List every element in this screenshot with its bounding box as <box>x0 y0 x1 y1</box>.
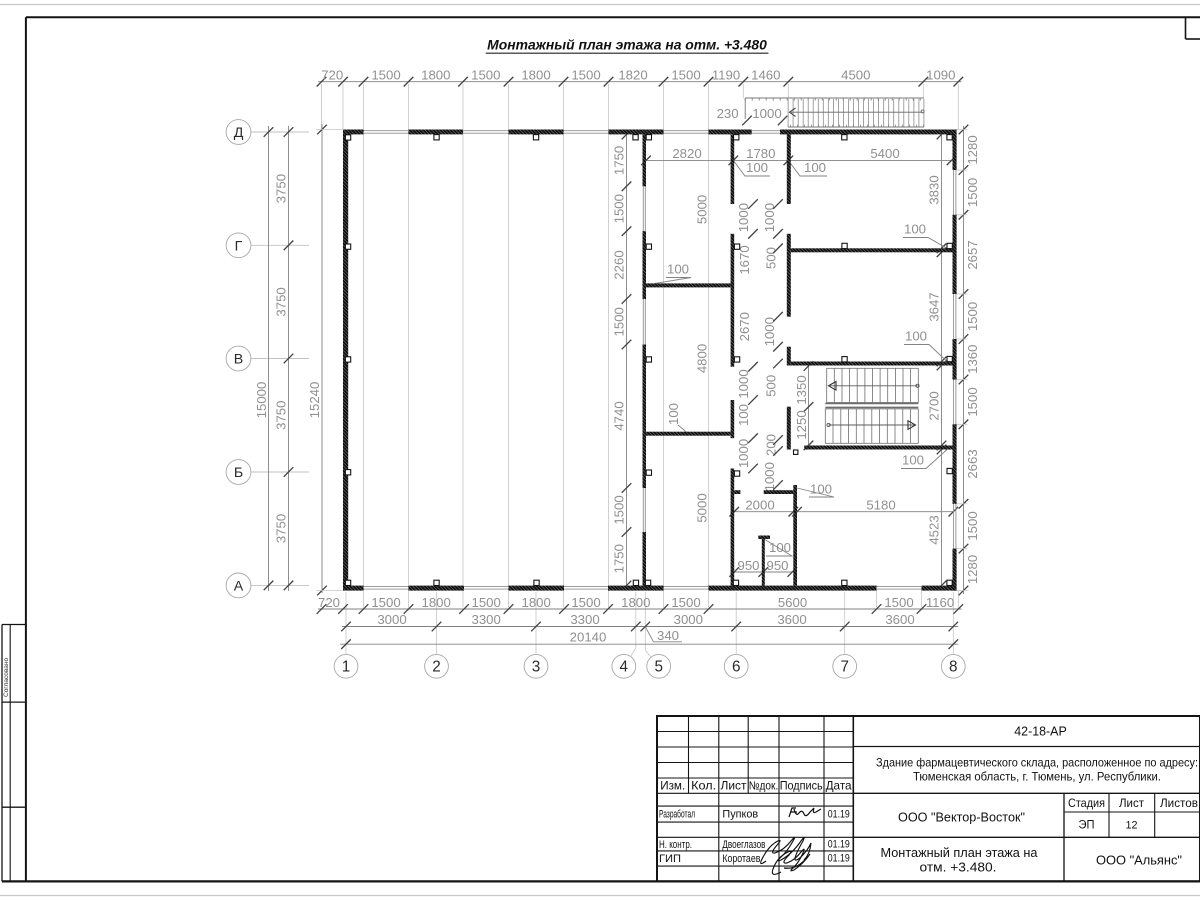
svg-text:А: А <box>234 579 244 595</box>
svg-text:8: 8 <box>949 659 958 676</box>
svg-text:1500: 1500 <box>611 194 626 223</box>
svg-text:3647: 3647 <box>927 292 942 321</box>
svg-text:15240: 15240 <box>307 382 322 419</box>
svg-text:ООО "Альянс": ООО "Альянс" <box>1096 853 1182 868</box>
svg-text:Тюменская область, г. Тюмень,: Тюменская область, г. Тюмень, ул. Респуб… <box>913 770 1161 784</box>
svg-text:1280: 1280 <box>965 555 980 584</box>
svg-text:1250: 1250 <box>794 410 809 439</box>
svg-text:1750: 1750 <box>611 146 626 175</box>
svg-text:1000: 1000 <box>762 317 777 346</box>
svg-text:7: 7 <box>840 659 849 676</box>
svg-text:100: 100 <box>746 160 768 175</box>
svg-text:3600: 3600 <box>777 612 806 627</box>
svg-text:1000: 1000 <box>752 106 781 121</box>
svg-text:12: 12 <box>1126 819 1138 831</box>
svg-text:340: 340 <box>657 628 679 643</box>
svg-text:1500: 1500 <box>472 595 501 610</box>
svg-text:1190: 1190 <box>712 67 740 82</box>
svg-text:950: 950 <box>766 558 788 573</box>
svg-text:15000: 15000 <box>254 382 269 419</box>
svg-text:5000: 5000 <box>695 493 710 522</box>
svg-text:5180: 5180 <box>866 498 895 513</box>
svg-text:1160: 1160 <box>926 595 954 610</box>
svg-text:1000: 1000 <box>736 369 751 398</box>
svg-text:5400: 5400 <box>870 146 899 161</box>
svg-text:1500: 1500 <box>965 178 980 207</box>
svg-text:1000: 1000 <box>736 203 751 232</box>
svg-text:4500: 4500 <box>841 67 870 82</box>
svg-text:2663: 2663 <box>965 449 980 478</box>
svg-text:1500: 1500 <box>571 67 600 82</box>
svg-text:1500: 1500 <box>965 387 980 416</box>
svg-text:Разработал: Разработал <box>659 809 695 821</box>
svg-text:100: 100 <box>902 453 924 468</box>
svg-text:2820: 2820 <box>672 146 701 161</box>
svg-text:100: 100 <box>905 329 927 344</box>
svg-text:1: 1 <box>342 659 351 676</box>
svg-text:3750: 3750 <box>273 514 288 543</box>
svg-text:230: 230 <box>717 106 739 121</box>
svg-text:720: 720 <box>318 595 340 610</box>
svg-text:3000: 3000 <box>377 612 406 627</box>
svg-text:5600: 5600 <box>778 595 807 610</box>
svg-text:2657: 2657 <box>965 240 980 269</box>
svg-text:Подпись: Подпись <box>780 779 823 793</box>
svg-text:Согласовано: Согласовано <box>3 658 10 697</box>
svg-text:1500: 1500 <box>611 307 626 336</box>
svg-text:1000: 1000 <box>762 462 777 491</box>
svg-text:Д: Д <box>234 125 244 141</box>
svg-text:100: 100 <box>666 403 681 425</box>
svg-text:Стадия: Стадия <box>1068 797 1105 810</box>
svg-text:100: 100 <box>804 160 826 175</box>
svg-text:5: 5 <box>654 659 663 676</box>
svg-text:1350: 1350 <box>794 375 809 404</box>
svg-text:1500: 1500 <box>371 67 400 82</box>
svg-text:2700: 2700 <box>927 391 942 420</box>
svg-text:Лист: Лист <box>1119 797 1145 810</box>
svg-text:4: 4 <box>620 659 629 676</box>
svg-text:ООО "Вектор-Восток": ООО "Вектор-Восток" <box>898 810 1025 825</box>
svg-text:1090: 1090 <box>926 67 955 82</box>
svg-text:отм. +3.480.: отм. +3.480. <box>920 859 997 874</box>
svg-text:1780: 1780 <box>746 146 775 161</box>
svg-text:01.19: 01.19 <box>828 808 850 820</box>
svg-text:1460: 1460 <box>751 67 780 82</box>
svg-text:100: 100 <box>736 404 751 426</box>
svg-text:1500: 1500 <box>965 511 980 540</box>
svg-text:2260: 2260 <box>611 250 626 279</box>
svg-text:1500: 1500 <box>671 67 700 82</box>
svg-text:Коротаев: Коротаев <box>722 853 760 865</box>
svg-text:100: 100 <box>904 222 926 237</box>
svg-text:4740: 4740 <box>611 401 626 430</box>
svg-text:Дата: Дата <box>826 779 852 793</box>
svg-text:2000: 2000 <box>745 498 774 513</box>
svg-text:Б: Б <box>234 465 243 481</box>
svg-text:1500: 1500 <box>884 595 913 610</box>
svg-text:Лист: Лист <box>721 779 748 793</box>
svg-text:01.19: 01.19 <box>828 853 850 865</box>
svg-text:1750: 1750 <box>611 544 626 573</box>
svg-text:1500: 1500 <box>371 595 400 610</box>
svg-text:1800: 1800 <box>521 67 550 82</box>
svg-text:2670: 2670 <box>737 312 752 341</box>
svg-text:1500: 1500 <box>671 595 700 610</box>
svg-text:2: 2 <box>432 659 441 676</box>
svg-text:Г: Г <box>235 238 243 254</box>
svg-text:Изм.: Изм. <box>660 779 685 793</box>
svg-text:3000: 3000 <box>674 612 703 627</box>
svg-text:Монтажный план этажа на: Монтажный план этажа на <box>881 845 1039 860</box>
svg-text:950: 950 <box>737 558 759 573</box>
svg-text:5000: 5000 <box>695 195 710 224</box>
svg-text:01.19: 01.19 <box>828 839 850 851</box>
svg-text:ЭП: ЭП <box>1079 818 1095 832</box>
svg-text:Пупков: Пупков <box>722 809 758 821</box>
svg-text:4800: 4800 <box>695 344 710 373</box>
svg-text:№док.: №док. <box>749 779 779 793</box>
svg-text:ГИП: ГИП <box>659 853 681 865</box>
svg-text:1800: 1800 <box>421 67 450 82</box>
svg-text:3830: 3830 <box>927 175 942 204</box>
svg-text:Монтажный план этажа на отм. +: Монтажный план этажа на отм. +3.480 <box>487 36 767 52</box>
svg-text:3750: 3750 <box>273 174 288 203</box>
svg-text:1360: 1360 <box>965 345 980 374</box>
svg-text:1500: 1500 <box>611 495 626 524</box>
svg-text:Н. контр.: Н. контр. <box>659 839 692 851</box>
svg-text:1800: 1800 <box>522 595 551 610</box>
svg-text:1280: 1280 <box>965 135 980 164</box>
svg-text:3: 3 <box>532 659 541 676</box>
svg-text:1500: 1500 <box>965 302 980 331</box>
svg-text:1800: 1800 <box>621 595 650 610</box>
svg-text:Двоеглазов: Двоеглазов <box>722 839 765 851</box>
svg-text:1500: 1500 <box>471 67 500 82</box>
svg-text:Кол.: Кол. <box>691 779 716 793</box>
svg-text:1820: 1820 <box>618 67 647 82</box>
svg-text:500: 500 <box>763 375 778 397</box>
svg-text:Листов: Листов <box>1160 797 1198 810</box>
svg-text:42-18-АР: 42-18-АР <box>1014 723 1067 738</box>
svg-text:4523: 4523 <box>927 515 942 544</box>
svg-text:3300: 3300 <box>570 612 599 627</box>
svg-text:3750: 3750 <box>273 287 288 316</box>
svg-text:3750: 3750 <box>273 401 288 430</box>
svg-text:В: В <box>234 352 243 368</box>
svg-text:1800: 1800 <box>422 595 451 610</box>
svg-text:6: 6 <box>732 659 741 676</box>
svg-text:Здание фармацевтического склад: Здание фармацевтического склада, располо… <box>876 755 1198 769</box>
svg-text:720: 720 <box>321 67 343 82</box>
svg-text:3300: 3300 <box>472 612 501 627</box>
svg-text:100: 100 <box>667 262 689 277</box>
svg-text:3600: 3600 <box>885 612 914 627</box>
svg-text:20140: 20140 <box>570 630 607 645</box>
svg-text:1500: 1500 <box>571 595 600 610</box>
svg-text:100: 100 <box>769 540 791 555</box>
